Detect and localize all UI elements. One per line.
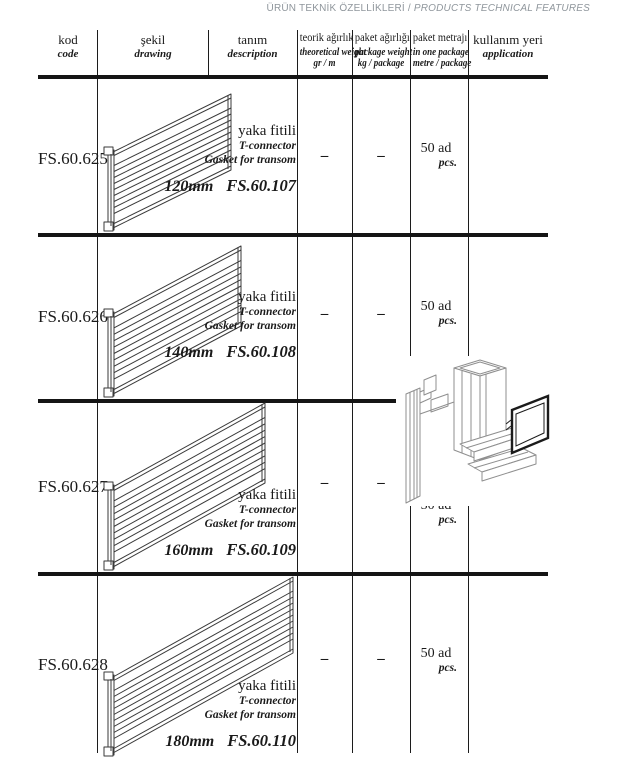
header-unit: metre / package [413,59,465,69]
package-weight-value: – [352,651,410,668]
description-en-line2: Gasket for transom [150,710,296,722]
size-label: 160mm [164,543,213,559]
package-weight-value: – [352,148,410,165]
size-and-part-code: 180mmFS.60.110 [150,733,296,750]
theoretical-weight-value: – [297,651,352,668]
column-header-tanim: tanımdescription [208,31,297,75]
header-label-tr: kullanım yeri [468,31,548,46]
column-divider [97,30,98,753]
description-en-line1: T-connector [150,141,296,153]
column-header-kullanim-yeri: kullanım yeriapplication [468,31,548,75]
catalog-page: ÜRÜN TEKNİK ÖZELLİKLERİ / PRODUCTS TECHN… [0,0,620,773]
header-label-en: theoretical weight [300,48,350,58]
description-tr: yaka fitili [150,488,296,503]
column-header-paket-metraji: paket metrajıin one packagemetre / packa… [410,31,468,75]
package-quantity-tr: 50 ad [412,300,460,314]
size-and-part-code: 160mmFS.60.109 [150,542,296,559]
product-code: FS.60.625 [38,149,97,169]
description-en-line1: T-connector [150,696,296,708]
product-code: FS.60.628 [38,655,97,675]
package-quantity: 50 adpcs. [412,300,460,328]
header-label-en: package weight [355,48,407,58]
header-label-en: drawing [98,49,208,60]
size-label: 140mm [164,345,213,361]
description-block: yaka fitiliT-connectorGasket for transom… [150,290,296,361]
description-en-line2: Gasket for transom [150,321,296,333]
product-code: FS.60.626 [38,307,97,327]
size-and-part-code: 120mmFS.60.107 [150,178,296,195]
header-unit: kg / package [355,59,407,69]
header-label-tr: kod [38,31,98,46]
header-label-tr: paket ağırlığı [355,31,407,45]
description-block: yaka fitiliT-connectorGasket for transom… [150,679,296,750]
description-block: yaka fitiliT-connectorGasket for transom… [150,488,296,559]
description-tr: yaka fitili [150,290,296,305]
description-en-line1: T-connector [150,505,296,517]
theoretical-weight-value: – [297,306,352,323]
page-title-en: PRODUCTS TECHNICAL FEATURES [414,3,590,14]
application-assembly-drawing [396,356,558,506]
gasket-part-code: FS.60.110 [227,733,296,750]
package-quantity-en: pcs. [412,158,460,170]
column-divider [352,30,353,753]
description-en-line2: Gasket for transom [150,519,296,531]
header-label-tr: paket metrajı [413,31,465,45]
gasket-part-code: FS.60.107 [226,178,296,195]
package-quantity-en: pcs. [412,515,460,527]
description-en-line2: Gasket for transom [150,155,296,167]
package-weight-value: – [352,306,410,323]
description-en-line1: T-connector [150,307,296,319]
package-quantity-en: pcs. [412,663,460,675]
description-tr: yaka fitili [150,679,296,694]
column-header-teorik: teorik ağırlıktheoretical weightgr / m [297,31,352,75]
header-label-tr: şekil [98,31,208,46]
column-header-paket-agirligi: paket ağırlığıpackage weightkg / package [352,31,410,75]
size-label: 120mm [164,179,213,195]
package-quantity-en: pcs. [412,316,460,328]
header-unit: gr / m [300,59,350,69]
header-label-en: in one package [413,48,465,58]
package-quantity-tr: 50 ad [412,647,460,661]
product-code: FS.60.627 [38,477,97,497]
theoretical-weight-value: – [297,148,352,165]
theoretical-weight-value: – [297,475,352,492]
header-label-tr: teorik ağırlık [300,31,350,45]
size-and-part-code: 140mmFS.60.108 [150,344,296,361]
header-label-tr: tanım [208,31,297,46]
package-quantity: 50 adpcs. [412,142,460,170]
column-header-sekil: şekildrawing [98,31,208,75]
package-quantity-tr: 50 ad [412,142,460,156]
page-title: ÜRÜN TEKNİK ÖZELLİKLERİ / PRODUCTS TECHN… [0,3,590,14]
assembly-illustration-svg [396,356,558,506]
gasket-part-code: FS.60.109 [226,542,296,559]
header-label-en: description [208,49,297,60]
column-header-kod: kodcode [38,31,98,75]
header-label-en: code [38,49,98,60]
size-label: 180mm [165,734,214,750]
description-tr: yaka fitili [150,124,296,139]
package-quantity: 50 adpcs. [412,647,460,675]
header-label-en: application [468,49,548,60]
description-block: yaka fitiliT-connectorGasket for transom… [150,124,296,195]
row-separator [38,75,548,79]
gasket-part-code: FS.60.108 [226,344,296,361]
page-title-tr: ÜRÜN TEKNİK ÖZELLİKLERİ / [267,3,411,14]
